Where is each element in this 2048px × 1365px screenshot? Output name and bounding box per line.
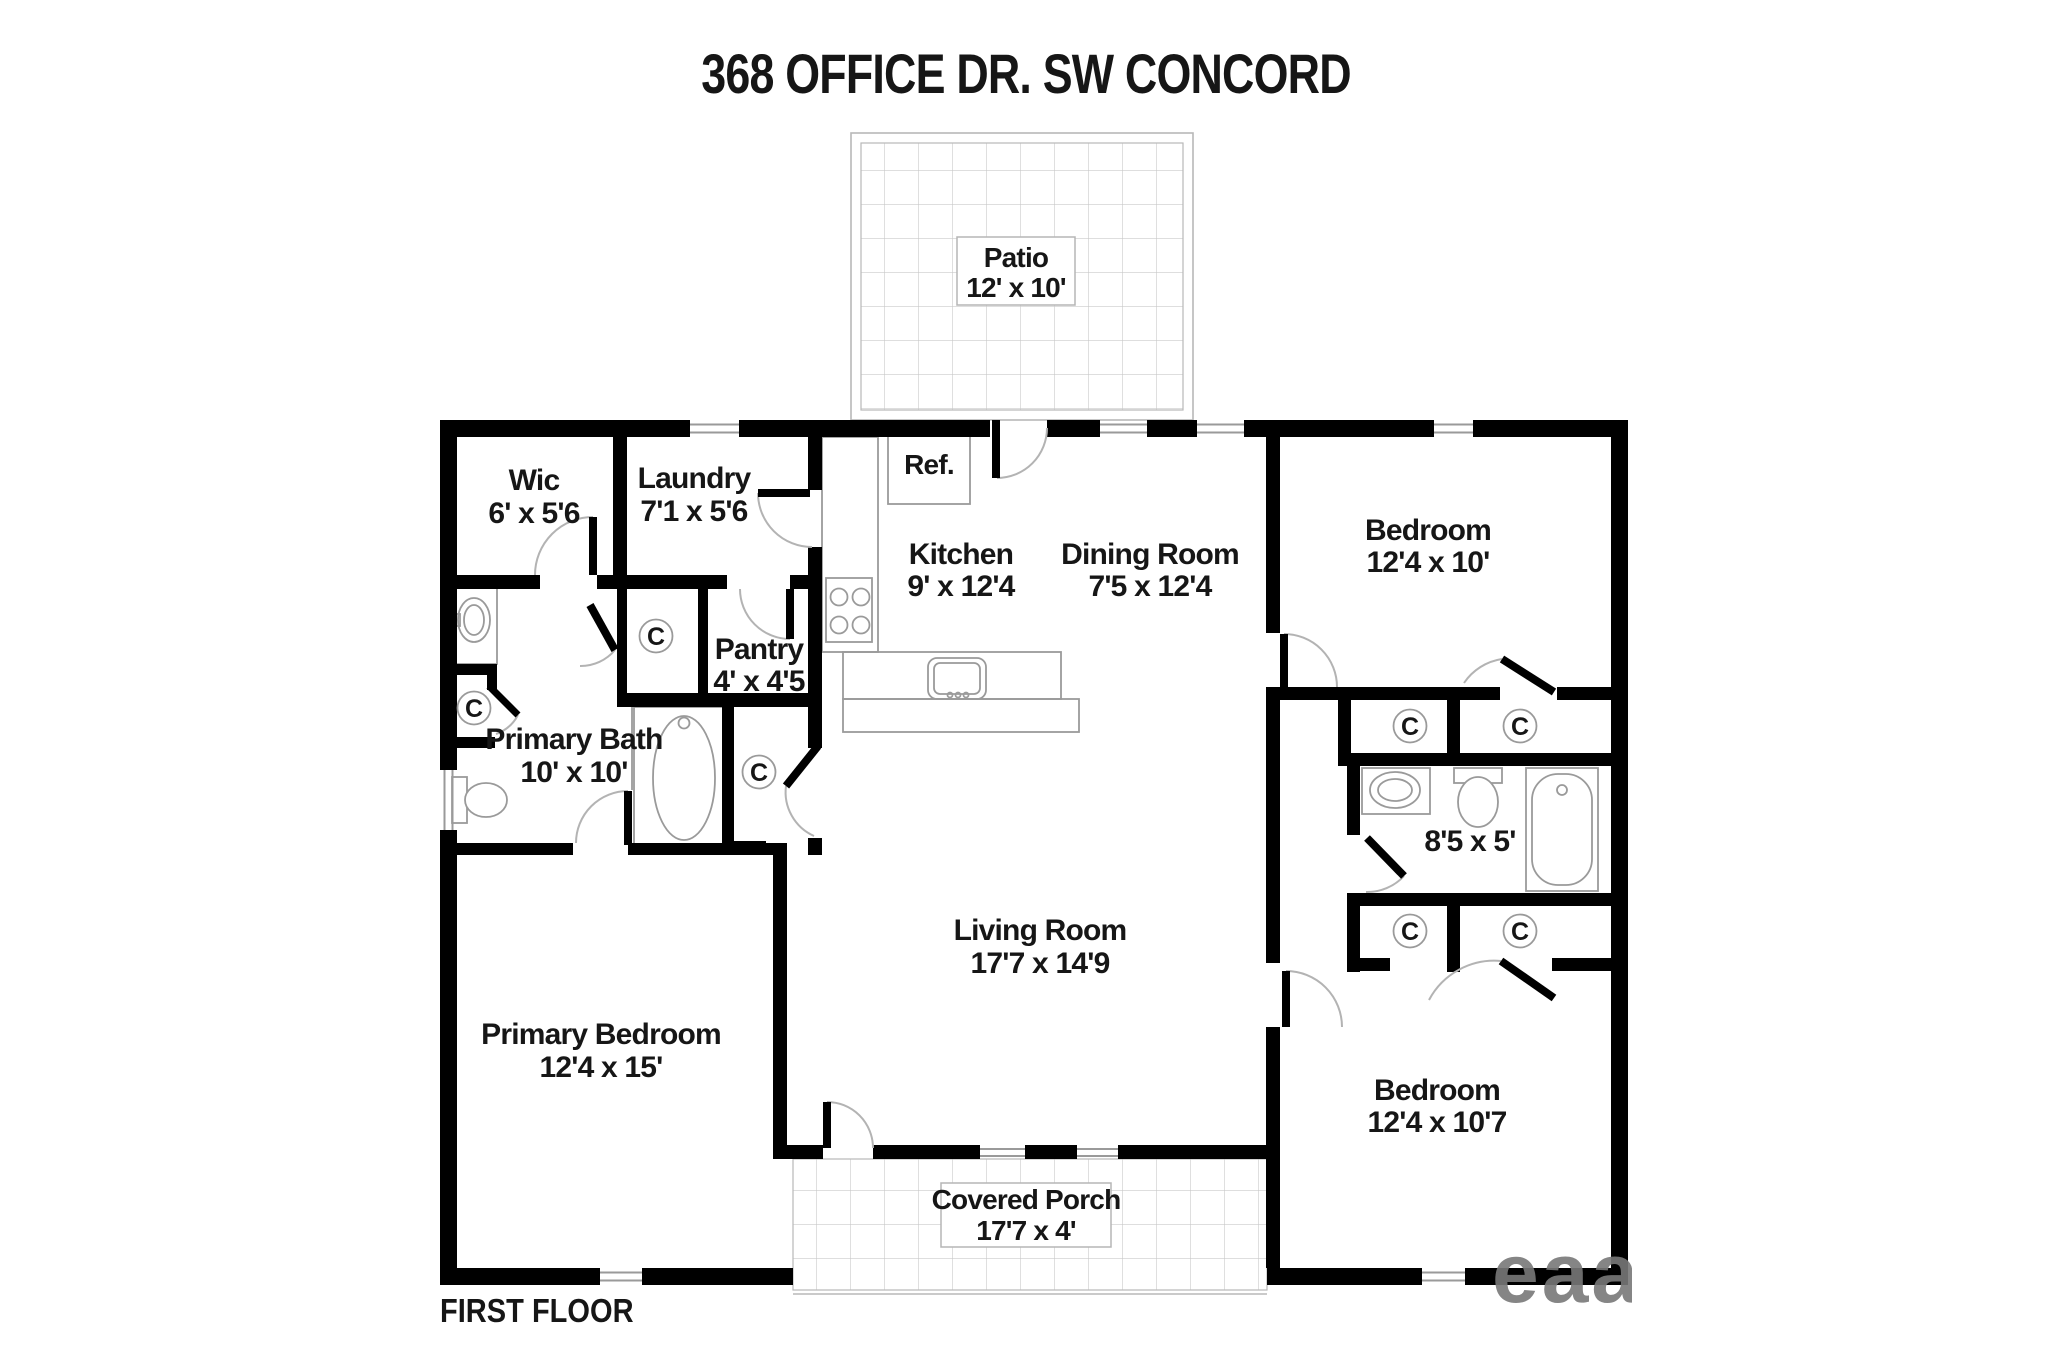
refrigerator-label: Ref.	[904, 449, 954, 480]
room-dims-kitchen: 9' x 12'4	[907, 570, 1015, 603]
covered-porch-area: Covered Porch 17'7 x 4'	[793, 1159, 1267, 1294]
room-label-bedroom-bottom: Bedroom	[1374, 1074, 1500, 1107]
stove-fixture	[826, 578, 872, 642]
closet-marker: C	[1504, 915, 1537, 948]
room-dims-pantry: 4' x 4'5	[713, 665, 804, 698]
room-labels: Wic 6' x 5'6 Laundry 7'1 x 5'6 Pantry 4'…	[481, 462, 1516, 1139]
room-dims-dining: 7'5 x 12'4	[1088, 570, 1212, 603]
svg-text:C: C	[1511, 918, 1529, 946]
svg-text:C: C	[1511, 713, 1529, 741]
svg-text:C: C	[647, 623, 665, 651]
porch-name: Covered Porch	[932, 1184, 1121, 1215]
room-dims-bedroom-bottom: 12'4 x 10'7	[1368, 1106, 1507, 1139]
room-label-living: Living Room	[954, 914, 1127, 947]
room-label-kitchen: Kitchen	[909, 538, 1013, 571]
patio-area: Patio 12' x 10'	[851, 133, 1193, 420]
room-label-laundry: Laundry	[638, 462, 752, 495]
sink-fixture	[1362, 768, 1430, 814]
floor-label: FIRST FLOOR	[440, 1292, 634, 1329]
patio-name: Patio	[984, 242, 1049, 273]
room-label-dining: Dining Room	[1061, 538, 1239, 571]
patio-dims: 12' x 10'	[966, 272, 1066, 303]
kitchen-island	[843, 652, 1079, 732]
refrigerator-box: Ref.	[888, 428, 970, 504]
room-dims-primary-bedroom: 12'4 x 15'	[539, 1051, 662, 1084]
room-dims-wic: 6' x 5'6	[488, 497, 579, 530]
bathtub-fixture	[1526, 768, 1598, 891]
svg-text:C: C	[750, 759, 768, 787]
closet-marker: C	[458, 692, 491, 725]
floor-plan-drawing: 368 OFFICE DR. SW CONCORD Patio 12' x 10…	[0, 0, 2048, 1365]
room-label-pantry: Pantry	[715, 633, 805, 666]
room-label-primary-bath: Primary Bath	[485, 723, 662, 756]
room-label-bedroom-top: Bedroom	[1365, 514, 1491, 547]
watermark: eaa	[1492, 1226, 1641, 1320]
closet-marker: C	[1394, 710, 1427, 743]
svg-text:C: C	[465, 695, 483, 723]
svg-text:C: C	[1401, 713, 1419, 741]
room-dims-laundry: 7'1 x 5'6	[640, 495, 747, 528]
closet-marker: C	[743, 756, 776, 789]
closet-marker: C	[640, 620, 673, 653]
room-dims-right-bath: 8'5 x 5'	[1424, 825, 1515, 858]
room-label-wic: Wic	[509, 464, 560, 497]
room-dims-bedroom-top: 12'4 x 10'	[1366, 546, 1489, 579]
room-label-primary-bedroom: Primary Bedroom	[481, 1018, 721, 1051]
floor-plan-page: 368 OFFICE DR. SW CONCORD Patio 12' x 10…	[0, 0, 2048, 1365]
toilet-fixture	[1454, 768, 1502, 827]
toilet-fixture	[452, 777, 507, 823]
closet-marker: C	[1504, 710, 1537, 743]
closet-marker: C	[1394, 915, 1427, 948]
porch-dims: 17'7 x 4'	[976, 1215, 1076, 1246]
room-dims-primary-bath: 10' x 10'	[520, 756, 627, 789]
room-dims-living: 17'7 x 14'9	[971, 947, 1110, 980]
svg-text:C: C	[1401, 918, 1419, 946]
page-title: 368 OFFICE DR. SW CONCORD	[701, 42, 1350, 105]
